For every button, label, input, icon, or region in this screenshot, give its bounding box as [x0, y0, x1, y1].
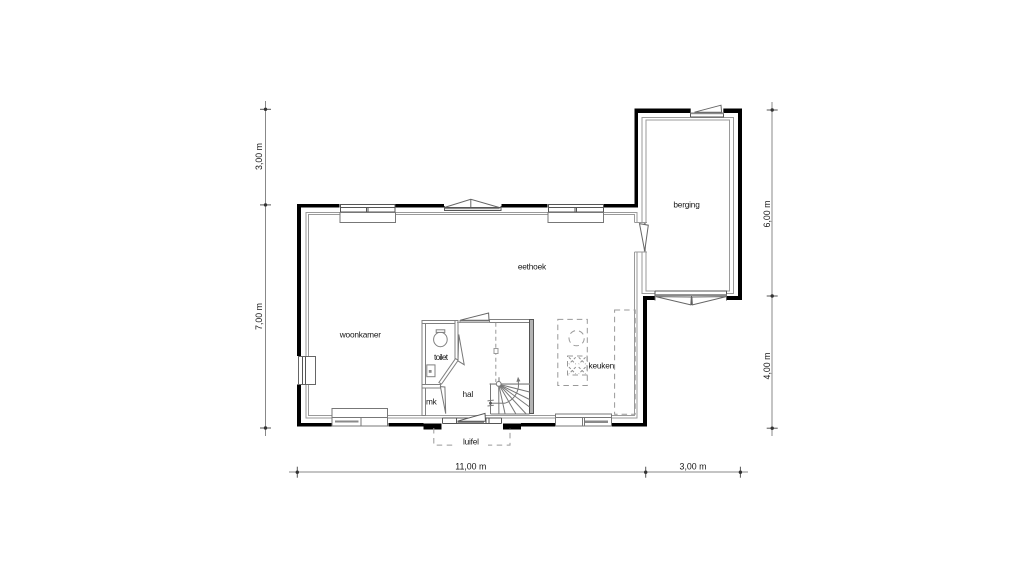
svg-text:7,00 m: 7,00 m [254, 303, 264, 330]
svg-text:hal: hal [463, 389, 474, 399]
svg-text:3,00 m: 3,00 m [254, 143, 264, 170]
svg-text:keuken: keuken [589, 360, 615, 370]
svg-text:6,00 m: 6,00 m [762, 201, 772, 228]
svg-text:mk: mk [426, 397, 438, 407]
svg-text:4,00 m: 4,00 m [762, 353, 772, 380]
svg-text:eethoek: eethoek [518, 262, 547, 272]
svg-text:11,00 m: 11,00 m [455, 461, 486, 471]
svg-text:3,00 m: 3,00 m [680, 461, 707, 471]
svg-text:woonkamer: woonkamer [339, 330, 382, 340]
svg-text:toilet: toilet [434, 352, 449, 362]
svg-text:berging: berging [673, 200, 700, 210]
svg-text:luifel: luifel [463, 437, 479, 447]
